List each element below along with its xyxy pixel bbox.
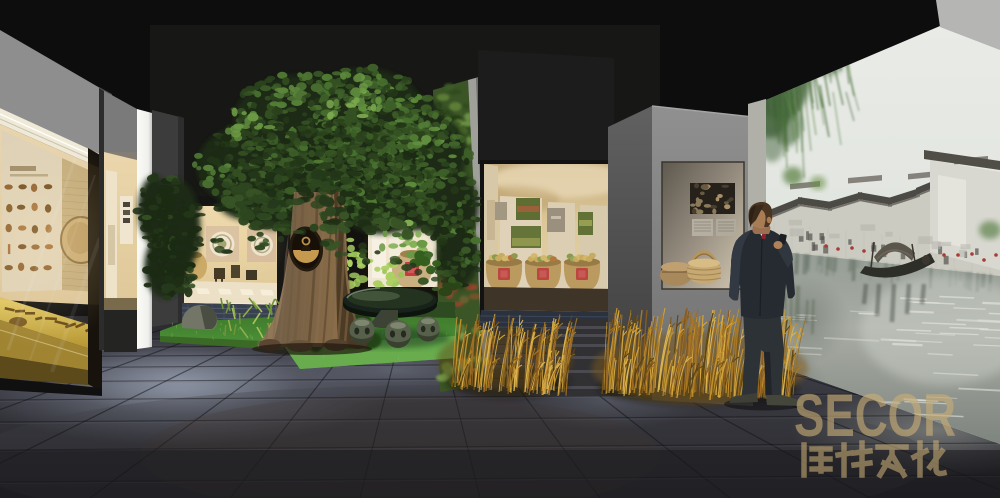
svg-text:SECOR: SECOR xyxy=(794,382,956,449)
